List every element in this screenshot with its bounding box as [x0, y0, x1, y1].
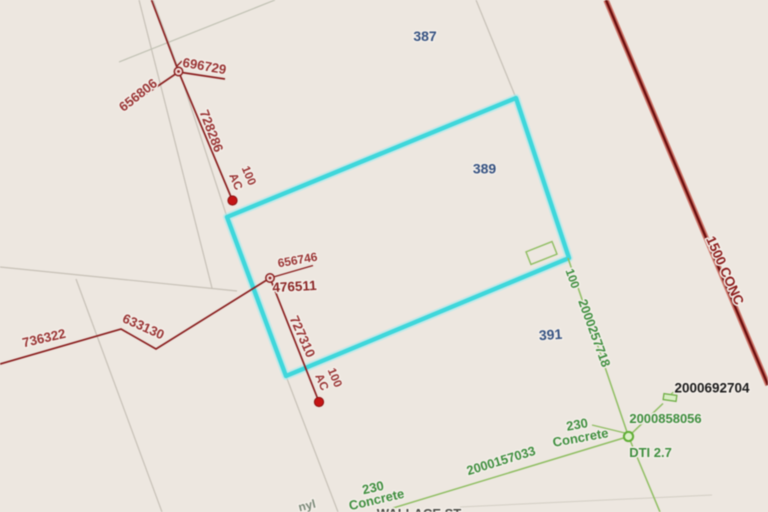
svg-text:2000692704: 2000692704 [674, 381, 750, 396]
svg-text:2000858056: 2000858056 [629, 411, 701, 426]
svg-text:476511: 476511 [272, 278, 318, 295]
svg-text:389: 389 [473, 161, 497, 177]
svg-text:DTI 2.7: DTI 2.7 [629, 445, 672, 460]
svg-text:WALLACE ST: WALLACE ST [377, 506, 462, 512]
svg-text:391: 391 [538, 326, 563, 344]
svg-text:387: 387 [413, 28, 437, 44]
